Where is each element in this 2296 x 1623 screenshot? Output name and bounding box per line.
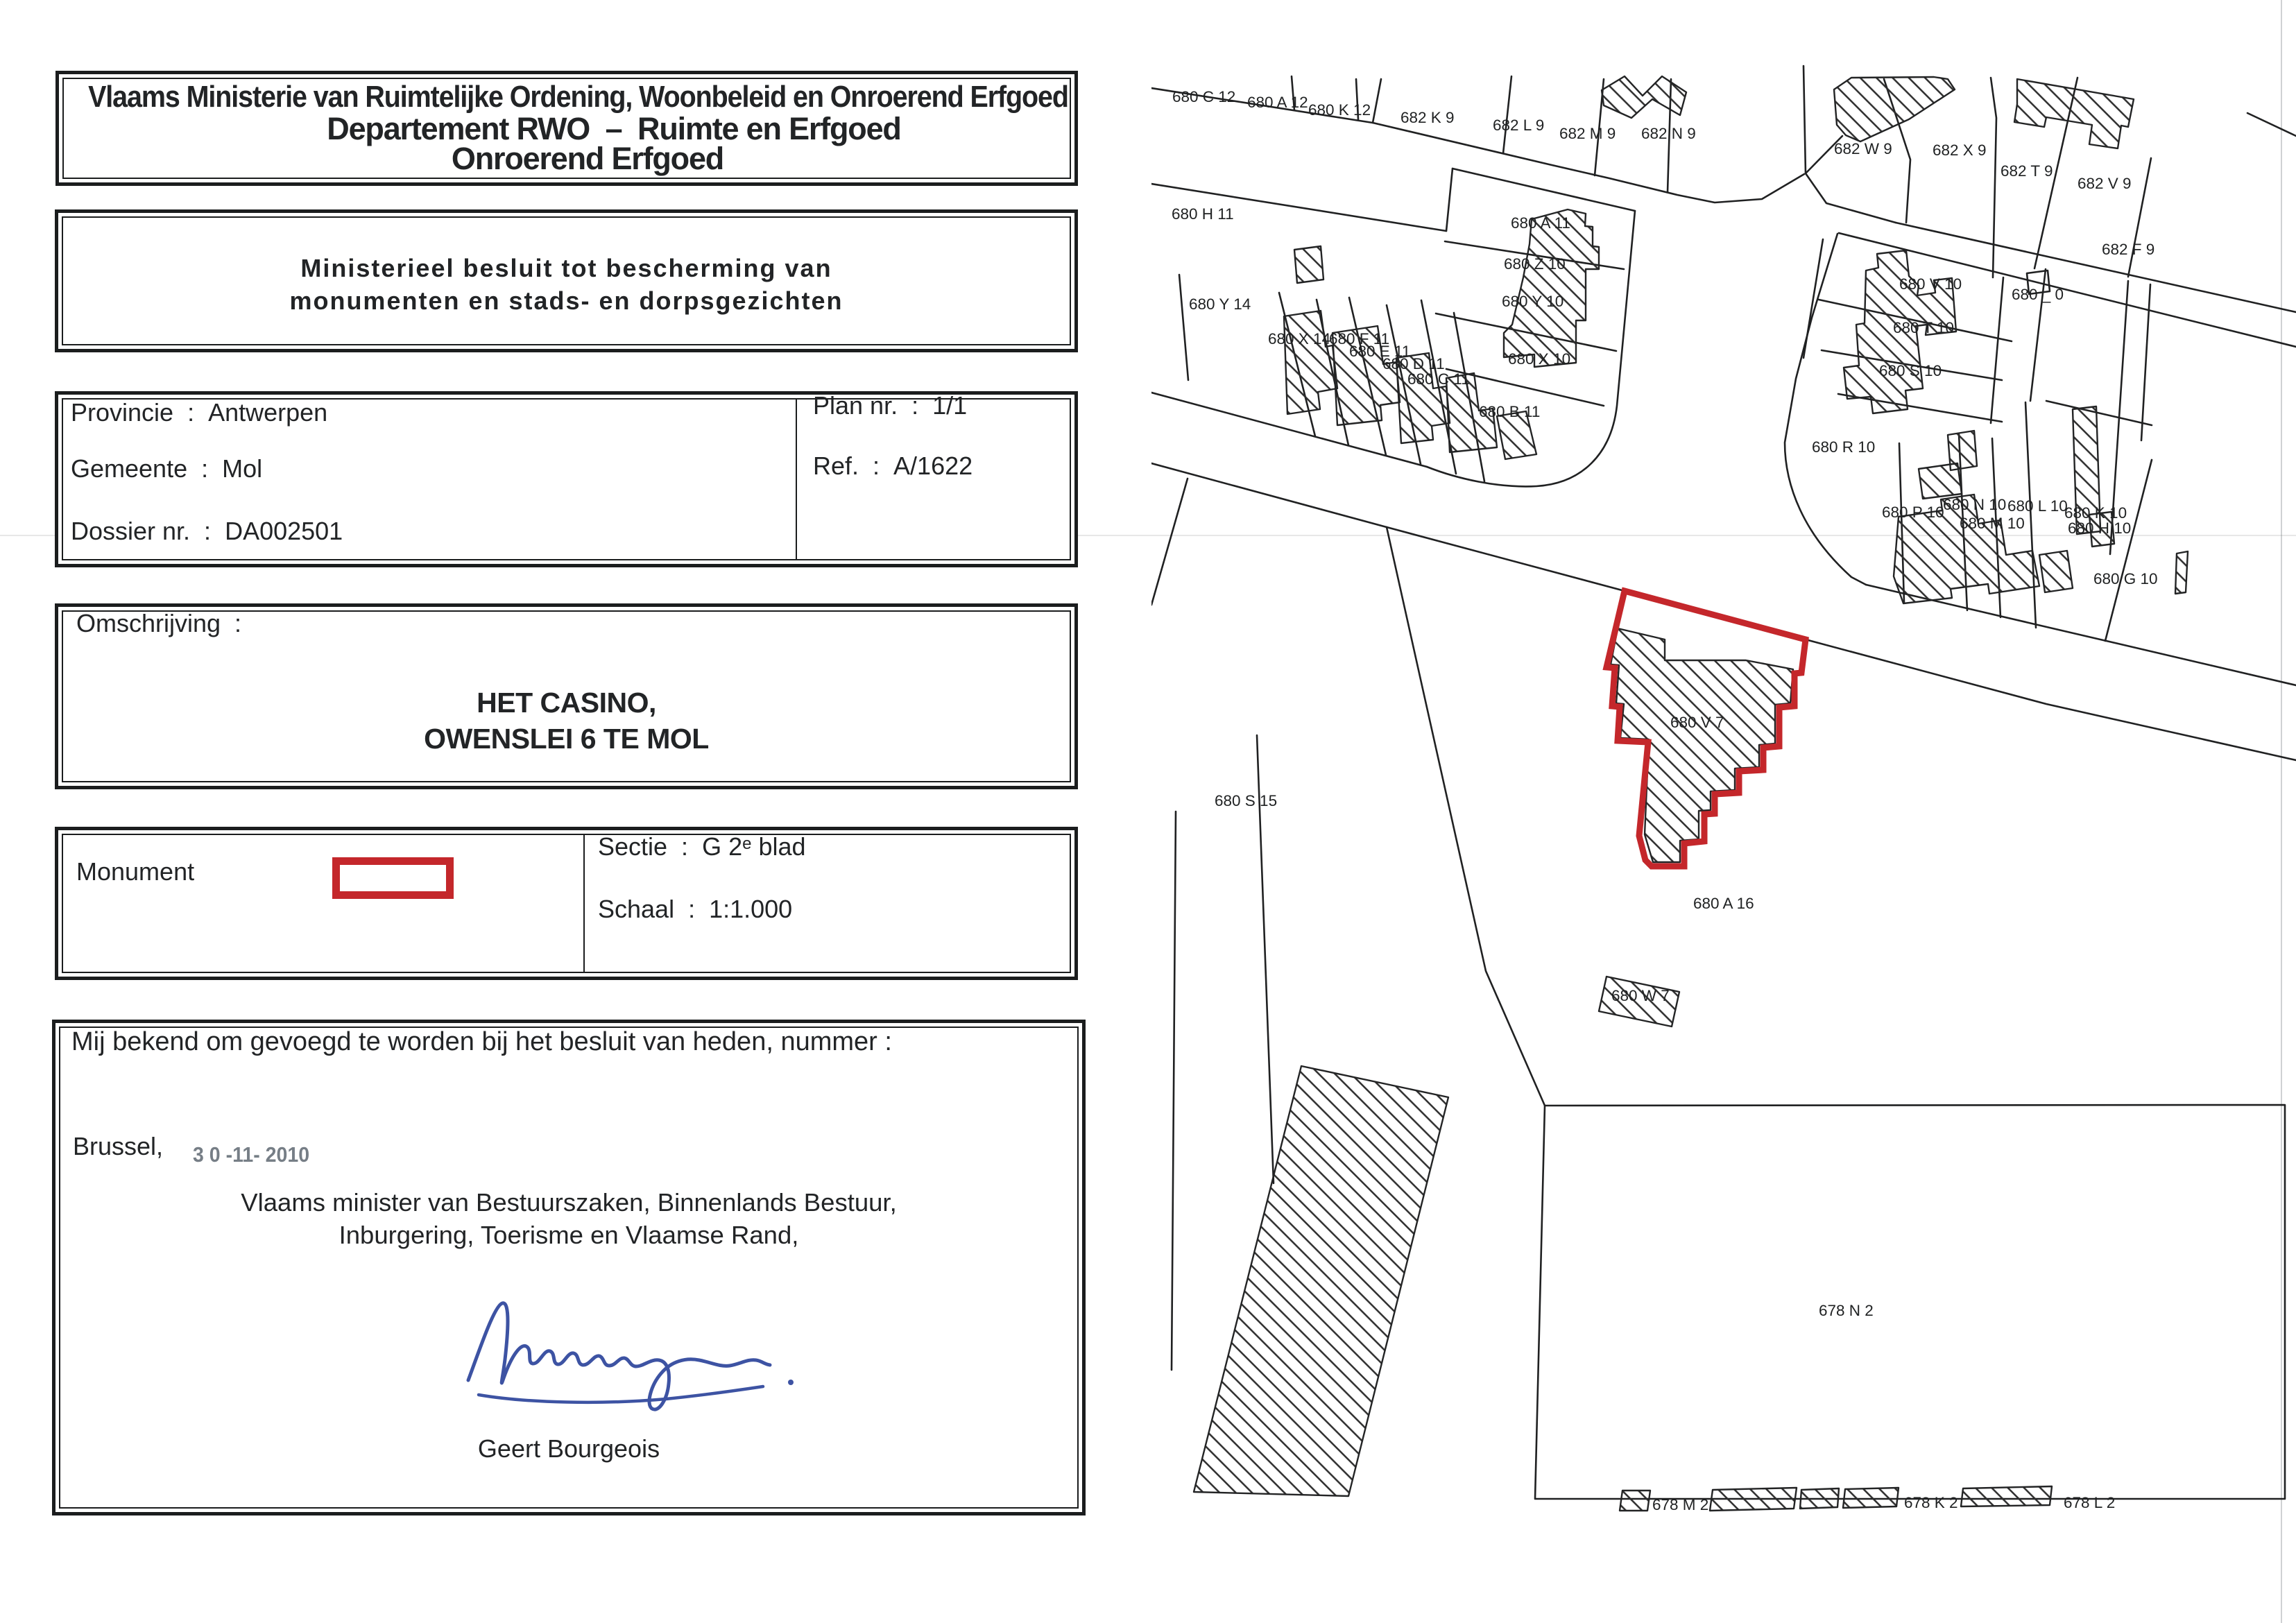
svg-text:680 X 14: 680 X 14 [1268, 330, 1330, 347]
svg-text:680 X 10: 680 X 10 [1508, 350, 1570, 368]
svg-text:680 _ 0: 680 _ 0 [2012, 286, 2064, 303]
svg-text:680 L 10: 680 L 10 [2007, 497, 2068, 515]
svg-text:680 A 12: 680 A 12 [1247, 94, 1308, 111]
svg-text:680 A 11: 680 A 11 [1511, 214, 1570, 232]
svg-text:680 M 10: 680 M 10 [1960, 515, 2025, 532]
svg-text:682 W 9: 682 W 9 [1834, 140, 1892, 157]
svg-text:678 M 2: 678 M 2 [1652, 1496, 1708, 1513]
svg-text:680 Y 10: 680 Y 10 [1502, 293, 1563, 310]
svg-text:680 P 10: 680 P 10 [1882, 504, 1944, 521]
svg-text:680 Z 10: 680 Z 10 [1504, 255, 1566, 273]
svg-text:682 T 9: 682 T 9 [2001, 162, 2053, 180]
svg-text:682 X 9: 682 X 9 [1933, 141, 1987, 159]
svg-text:678 L 2: 678 L 2 [2064, 1494, 2115, 1511]
svg-text:680 N 10: 680 N 10 [1943, 496, 2006, 513]
svg-text:680 K 12: 680 K 12 [1308, 101, 1371, 119]
svg-text:682 L 9: 682 L 9 [1493, 117, 1544, 134]
svg-text:678 N 2: 678 N 2 [1819, 1302, 1874, 1319]
svg-text:680 Y 14: 680 Y 14 [1189, 295, 1251, 313]
svg-text:680 S 15: 680 S 15 [1215, 792, 1277, 809]
svg-text:680 H 10: 680 H 10 [2068, 519, 2131, 537]
svg-text:680 V 7: 680 V 7 [1670, 714, 1724, 731]
svg-text:680 T 10: 680 T 10 [1893, 319, 1954, 336]
svg-text:682 F 9: 682 F 9 [2102, 241, 2154, 258]
svg-text:680 R 10: 680 R 10 [1812, 438, 1875, 456]
svg-text:682 N 9: 682 N 9 [1641, 125, 1696, 142]
svg-text:680 V 10: 680 V 10 [1899, 275, 1962, 293]
svg-text:680 B 11: 680 B 11 [1479, 403, 1540, 420]
svg-text:680 G 10: 680 G 10 [2093, 570, 2158, 587]
svg-text:682 V 9: 682 V 9 [2077, 175, 2132, 192]
svg-text:680 H 11: 680 H 11 [1172, 205, 1234, 223]
svg-text:680 A 16: 680 A 16 [1693, 895, 1754, 912]
svg-text:680 C 12: 680 C 12 [1172, 88, 1235, 105]
svg-text:680 S 10: 680 S 10 [1879, 362, 1942, 379]
svg-text:678 K 2: 678 K 2 [1904, 1494, 1958, 1511]
svg-text:680 W 7: 680 W 7 [1611, 987, 1670, 1004]
svg-text:680 C 11: 680 C 11 [1407, 370, 1470, 388]
svg-text:682 M 9: 682 M 9 [1559, 125, 1616, 142]
svg-text:682 K 9: 682 K 9 [1400, 109, 1455, 126]
